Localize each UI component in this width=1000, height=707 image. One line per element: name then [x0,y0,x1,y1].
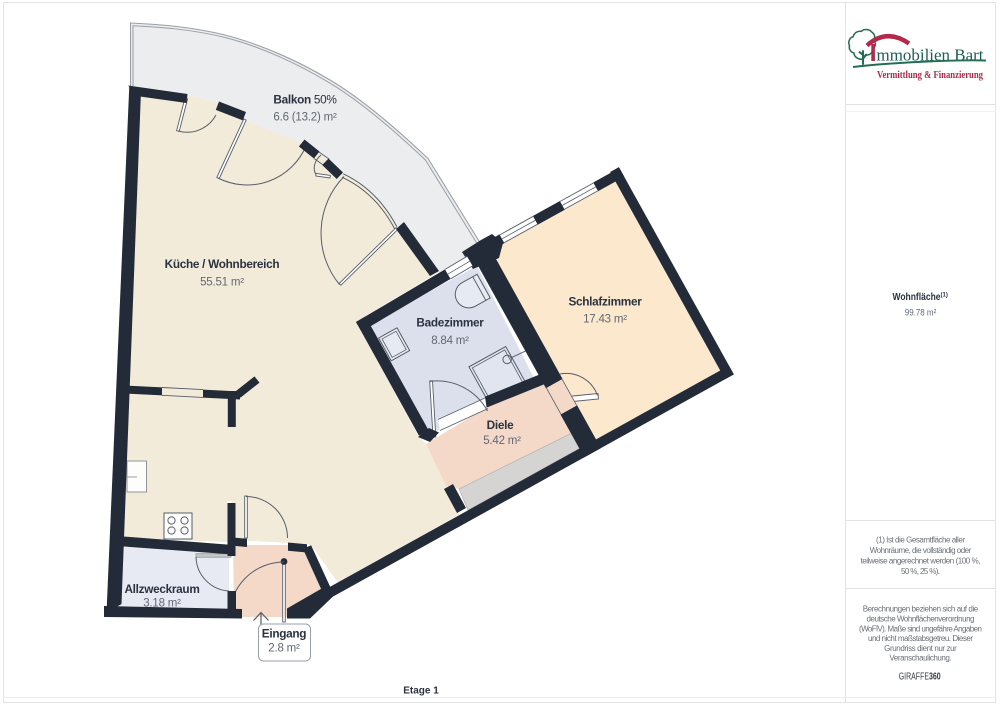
svg-text:Schlafzimmer: Schlafzimmer [568,295,642,309]
svg-text:Wohnräume, die vollständig ode: Wohnräume, die vollständig oder [870,546,972,555]
svg-text:Küche / Wohnbereich: Küche / Wohnbereich [165,257,280,271]
svg-text:99.78 m²: 99.78 m² [905,307,937,318]
svg-text:Etage 1: Etage 1 [403,686,439,697]
svg-text:und nicht maßstabsgetreu. Dies: und nicht maßstabsgetreu. Dieser [868,634,973,643]
svg-text:GIRAFFE360: GIRAFFE360 [899,671,941,683]
svg-text:5.42 m²: 5.42 m² [483,435,521,447]
svg-text:55.51 m²: 55.51 m² [200,277,244,289]
svg-text:deutsche Wohnflächenverordnung: deutsche Wohnflächenverordnung [867,615,975,624]
svg-text:3.18 m²: 3.18 m² [143,598,181,610]
svg-text:50 %, 25 %).: 50 %, 25 %). [901,567,940,576]
svg-text:(1) Ist die Gesamtfläche aller: (1) Ist die Gesamtfläche aller [876,535,965,544]
svg-text:Diele: Diele [487,418,514,432]
svg-text:6.6 (13.2) m²: 6.6 (13.2) m² [273,112,337,124]
svg-text:Eingang: Eingang [262,627,307,641]
svg-text:Veranschaulichung.: Veranschaulichung. [889,654,951,663]
svg-text:teilweise angerechnet werden (: teilweise angerechnet werden (100 %, [861,556,981,565]
svg-text:2.8 m²: 2.8 m² [268,643,300,655]
svg-text:Wohnfläche(1): Wohnfläche(1) [893,292,948,303]
svg-text:Berechnungen beziehen sich auf: Berechnungen beziehen sich auf die [863,605,979,614]
svg-text:Allzweckraum: Allzweckraum [124,582,199,596]
svg-text:Grundriss dient nur zur: Grundriss dient nur zur [884,644,957,653]
svg-text:Badezimmer: Badezimmer [416,316,484,330]
svg-text:(WoFlV). Maße sind ungefähre A: (WoFlV). Maße sind ungefähre Angaben [859,624,982,633]
svg-text:17.43 m²: 17.43 m² [583,314,627,326]
svg-text:Balkon 50%: Balkon 50% [273,93,337,107]
svg-text:8.84 m²: 8.84 m² [431,335,469,347]
svg-text:Vermittlung & Finanzierung: Vermittlung & Finanzierung [877,70,984,81]
